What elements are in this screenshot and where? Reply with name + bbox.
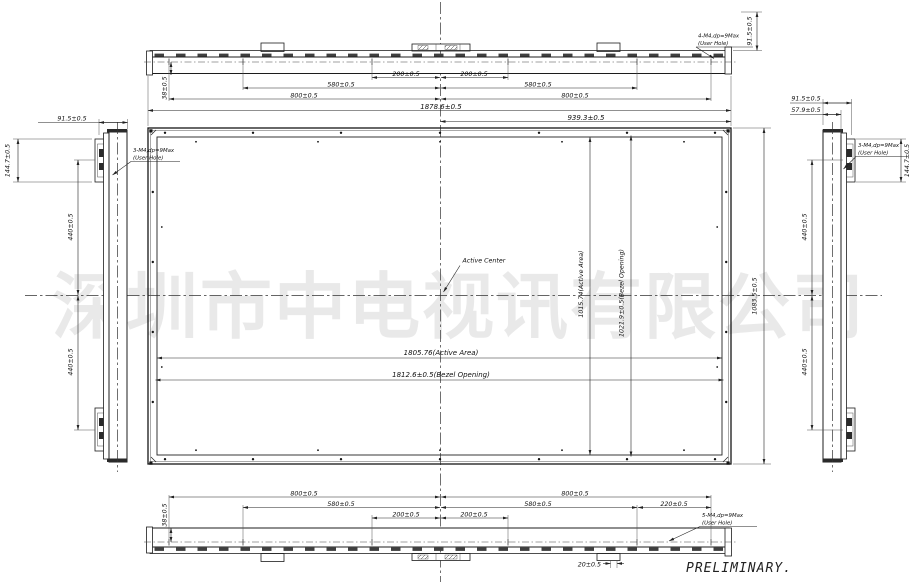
dim-active-area-height: 1015.74(Active Area) [577,250,585,317]
dim-left-91-5: 91.5±0.5 [57,116,86,123]
dim-top-580-right: 580±0.5 [524,82,551,89]
bottom-handle-left [261,554,284,562]
dim-bezel-opening-width: 1812.6±0.5(Bezel Opening) [392,371,490,379]
right-top-cap [823,129,843,133]
note-bottom-line2: (User Hole) [702,521,732,527]
left-side-view: 91.5±0.5 144.7±0.5 440±0.5 440±0.5 3-M4,… [5,116,181,473]
right-bottom-cap [823,459,843,463]
dim-bottom-220: 220±0.5 [660,501,687,508]
dim-bottom-38: 38±0.5 [162,503,169,526]
right-mount-strip [841,133,847,459]
note-left-line2: (User Hole) [133,156,163,162]
top-right-endcap [725,47,732,74]
left-bar-body [109,130,127,462]
front-internal-dimensions: 1805.76(Active Area) 1812.6±0.5(Bezel Op… [156,136,724,457]
dim-top-91-5: 91.5±0.5 [747,16,754,45]
dim-top-200-left: 200±0.5 [392,71,419,78]
note-right-line1: 3-M4,dp=9Max [858,143,900,149]
right-bar-body [823,130,841,462]
top-bar-body [150,57,729,74]
dim-bottom-20: 20±0.5 [578,562,601,569]
dim-overall-height: 1083.5±0.5 [752,277,759,314]
front-bezel-opening [157,137,722,455]
bottom-bar-body [150,528,729,547]
dim-right-57-9: 57.9±0.5 [791,107,820,114]
dim-top-38: 38±0.5 [162,76,169,99]
front-screw-holes [152,132,728,461]
front-outer-frame [148,128,731,464]
dim-top-580-left: 580±0.5 [327,82,354,89]
dim-left-144-7: 144.7±0.5 [5,144,12,177]
bottom-view: 800±0.5 800±0.5 580±0.5 580±0.5 220±0.5 … [144,491,757,569]
left-mount-strip [104,133,110,459]
left-bottom-cap [107,459,127,463]
note-top-line2: (User Hole) [698,41,728,47]
dim-right-144-7: 144.7±0.5 [904,144,911,177]
right-side-view: 91.5±0.5 57.9±0.5 144.7±0.5 440±0.5 440±… [790,96,911,473]
active-center-callout: Active Center [444,257,506,293]
front-frame-inner-line [151,131,729,462]
note-top-line1: 4-M4,dp=9Max [698,34,740,40]
drawing-sheet: 深圳市中电视讯有限公司 [0,0,924,584]
bottom-left-endcap [147,527,153,553]
bottom-center-bracket [412,554,470,561]
dim-bottom-800-right: 800±0.5 [561,491,588,498]
dim-top-800-left: 800±0.5 [290,93,317,100]
note-left-line1: 3-M4,dp=9Max [133,148,175,154]
dim-right-440-lower: 440±0.5 [802,348,809,375]
active-center-label: Active Center [462,257,506,265]
left-top-cap [107,129,127,133]
dim-left-440-upper: 440±0.5 [68,213,75,240]
top-view: 200±0.5 200±0.5 580±0.5 580±0.5 800±0.5 … [144,12,762,126]
front-corner-marks [149,129,729,464]
dim-top-800-right: 800±0.5 [561,93,588,100]
dim-bottom-580-left: 580±0.5 [327,501,354,508]
engineering-drawing: 200±0.5 200±0.5 580±0.5 580±0.5 800±0.5 … [0,0,924,584]
dim-left-440-lower: 440±0.5 [68,348,75,375]
dim-right-91-5: 91.5±0.5 [791,96,820,103]
note-right-line2: (User Hole) [858,151,888,157]
dim-bottom-200-left: 200±0.5 [392,512,419,519]
dim-bottom-580-right: 580±0.5 [524,501,551,508]
dim-overall-width: 1878.6±0.5 [420,103,462,111]
front-view: Active Center 1805.76(Active Area) 1812.… [148,128,771,465]
preliminary-stamp: PRELIMINARY. [686,561,792,576]
top-vent-strip [150,51,729,58]
front-height-dimension: 1083.5±0.5 [733,128,771,464]
dim-bottom-200-right: 200±0.5 [460,512,487,519]
dim-bezel-opening-height: 1021.9±0.5(Bezel Opening) [619,249,626,337]
dim-top-200-right: 200±0.5 [460,71,487,78]
dim-right-440-upper: 440±0.5 [802,213,809,240]
bottom-handle-right [597,554,620,561]
dim-active-area-width: 1805.76(Active Area) [404,349,479,357]
dim-half-width: 939.3±0.5 [567,114,605,122]
dim-bottom-800-left: 800±0.5 [290,491,317,498]
top-left-endcap [147,51,153,75]
top-center-bracket [412,44,470,51]
bottom-vent-strip [150,547,729,554]
note-bottom-line1: 5-M4,dp=9Max [702,513,744,519]
